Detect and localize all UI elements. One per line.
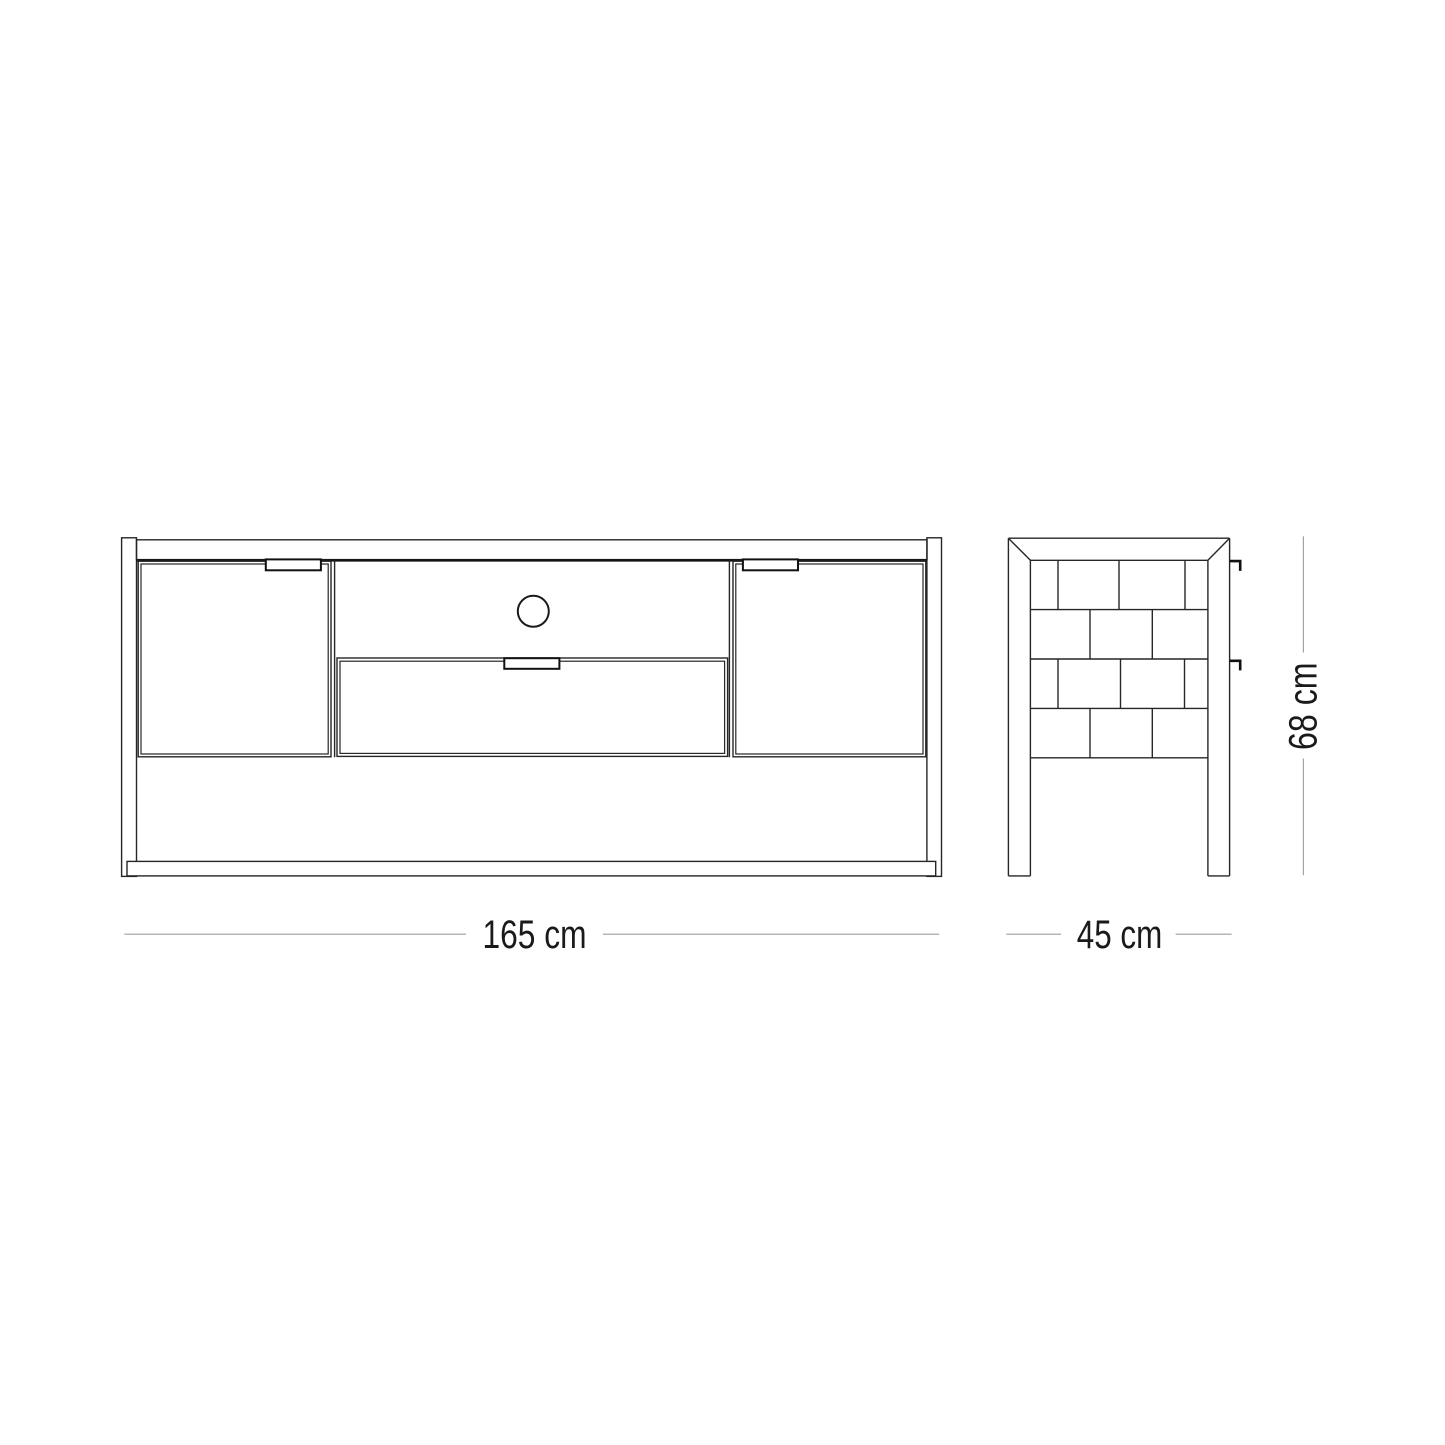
svg-text:165 cm: 165 cm [483,913,587,957]
svg-text:45 cm: 45 cm [1077,913,1163,957]
svg-text:68 cm: 68 cm [1281,662,1325,750]
